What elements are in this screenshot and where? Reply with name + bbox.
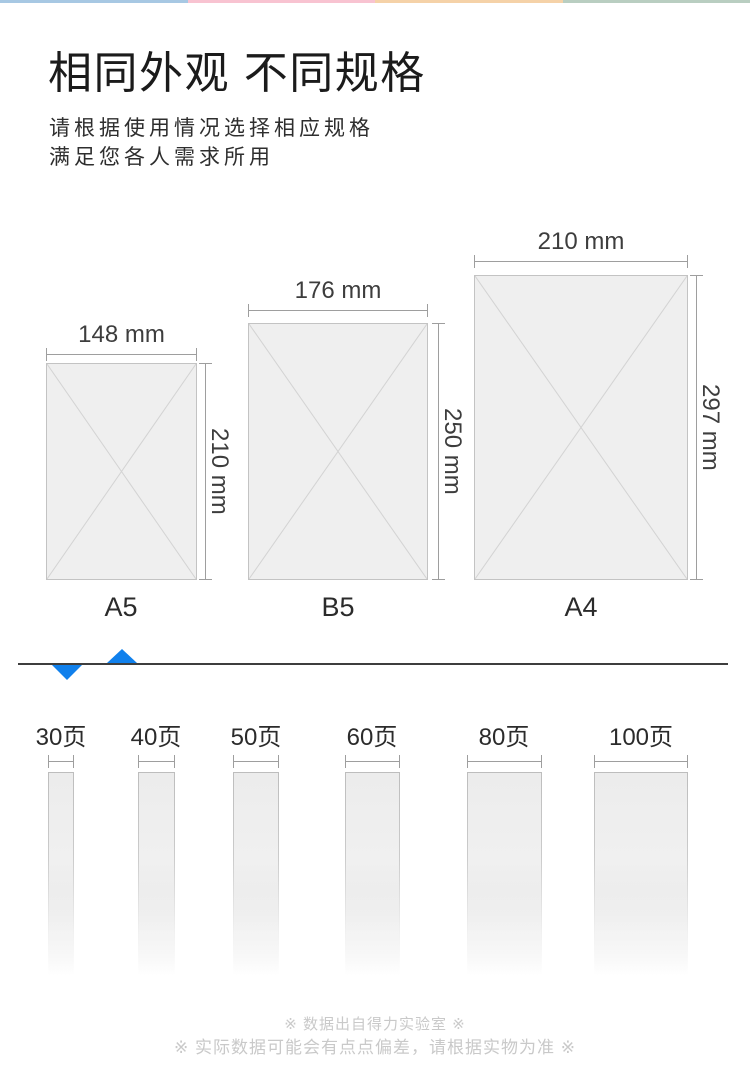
thickness-dim-line-30 [48,755,74,768]
thickness-dim-line-50 [233,755,279,768]
page-count-label-80: 80页 [444,717,564,752]
a4-height-dim-label: 297 mm [696,275,724,580]
page-subtitle: 请根据使用情况选择相应规格 满足您各人需求所用 [49,114,374,172]
b5-diagonal-cross [249,324,427,579]
accent-strip-segment-blue [0,0,188,3]
b5-width-dim-label: 176 mm [248,278,428,304]
b5-width-dim-line [248,304,428,317]
thickness-bar-60 [345,772,400,986]
product-spec-infographic: 相同外观 不同规格 请根据使用情况选择相应规格 满足您各人需求所用 148 mm… [0,0,750,1079]
subtitle-line-1: 请根据使用情况选择相应规格 [49,114,374,143]
subtitle-line-2: 满足您各人需求所用 [49,143,374,172]
thickness-bar-fill [234,773,278,986]
a4-diagonal-cross [475,276,687,579]
a5-height-dim-label: 210 mm [205,363,233,580]
thickness-bar-50 [233,772,279,986]
b5-height-dim-label: 250 mm [438,323,466,580]
b5-paper-rect [248,323,428,580]
thickness-bar-fill [346,773,399,986]
thickness-bar-fill [468,773,541,986]
thickness-bar-80 [467,772,542,986]
a5-width-dim-label: 148 mm [46,322,197,348]
a5-paper-rect [46,363,197,580]
page-count-label-100: 100页 [581,717,701,752]
thickness-bar-fill [139,773,174,986]
footer-note-1: ※ 数据出自得力实验室 ※ [0,1013,750,1034]
footer-note-2: ※ 实际数据可能会有点点偏差，请根据实物为准 ※ [0,1033,750,1058]
a5-width-dim-line [46,348,197,361]
accent-strip-segment-orange [375,0,563,3]
thickness-dim-line-40 [138,755,175,768]
triangle-down-icon [52,665,82,680]
thickness-dim-line-80 [467,755,542,768]
thickness-dim-line-100 [594,755,688,768]
section-divider-line [18,663,728,665]
a5-diagonal-cross [47,364,196,579]
thickness-dim-line-60 [345,755,400,768]
thickness-bar-100 [594,772,688,986]
thickness-bar-fill [49,773,73,986]
page-title: 相同外观 不同规格 [48,48,426,100]
a4-size-name: A4 [521,592,641,623]
triangle-up-icon [107,649,137,663]
b5-size-name: B5 [278,592,398,623]
accent-strip-segment-green [563,0,750,3]
accent-strip-segment-pink [188,0,376,3]
a4-width-dim-label: 210 mm [474,229,688,255]
page-count-label-50: 50页 [196,717,316,752]
a5-size-name: A5 [61,592,181,623]
thickness-bar-fill [595,773,687,986]
thickness-bar-40 [138,772,175,986]
a4-paper-rect [474,275,688,580]
accent-strip [0,0,750,3]
thickness-bar-30 [48,772,74,986]
page-count-label-60: 60页 [312,717,432,752]
a4-width-dim-line [474,255,688,268]
